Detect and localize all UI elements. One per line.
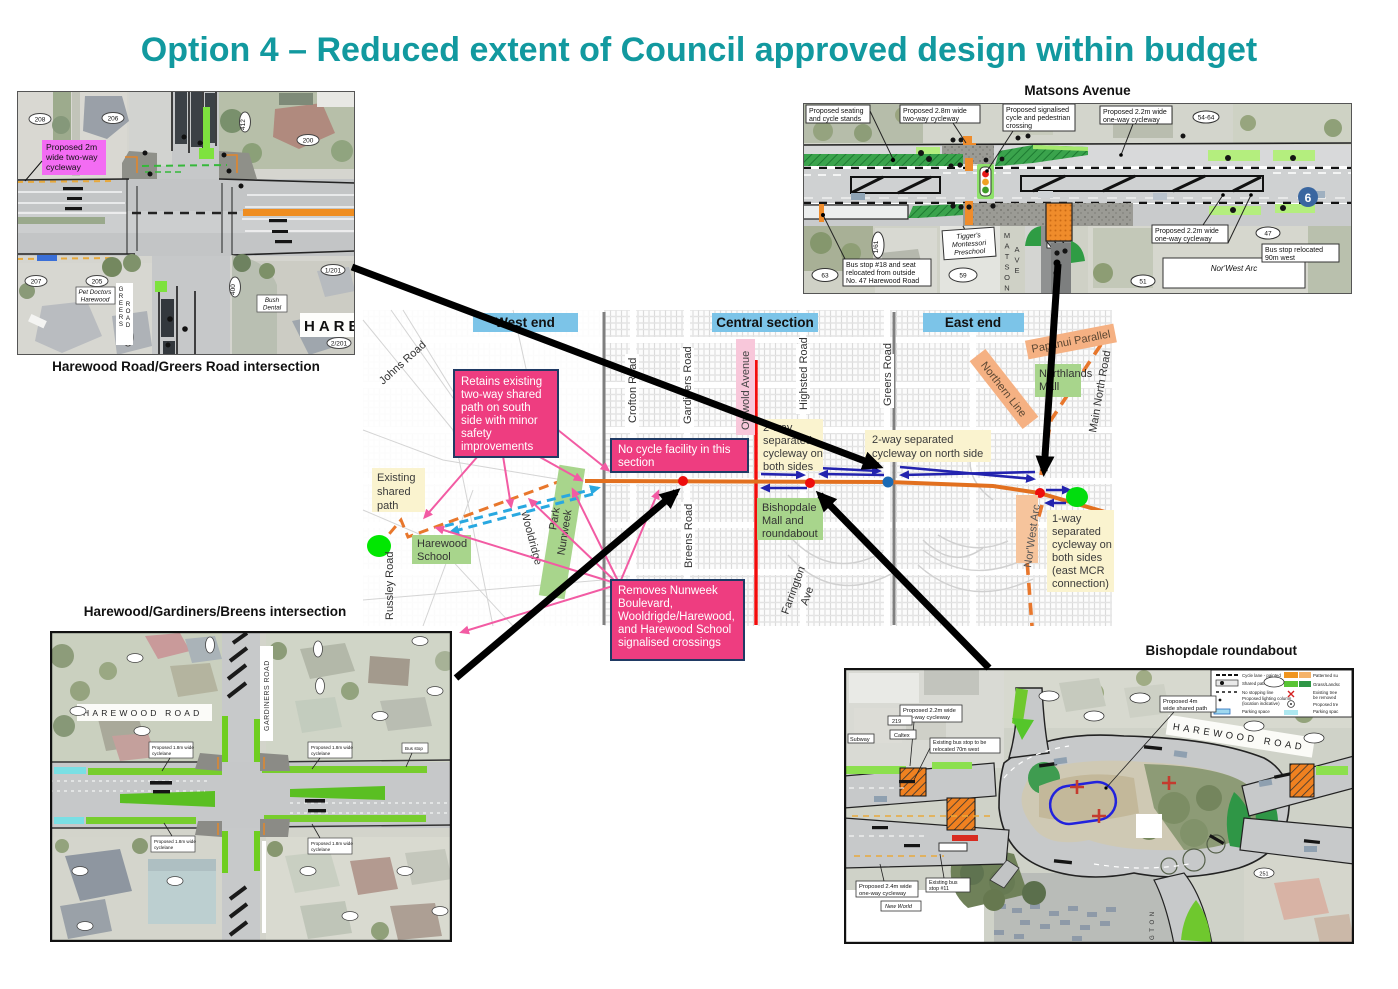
svg-text:412: 412 xyxy=(240,119,247,130)
svg-text:cycle and pedestrian: cycle and pedestrian xyxy=(1006,115,1070,122)
svg-text:63: 63 xyxy=(821,273,829,280)
svg-text:207: 207 xyxy=(31,279,42,286)
svg-text:safety: safety xyxy=(461,428,492,440)
svg-text:Breens Road: Breens Road xyxy=(683,504,695,568)
svg-text:Bus stop: Bus stop xyxy=(405,746,423,751)
svg-text:1/61: 1/61 xyxy=(873,240,880,253)
svg-text:Proposed 2.2m wide: Proposed 2.2m wide xyxy=(1103,109,1167,116)
svg-text:251: 251 xyxy=(1259,872,1268,878)
svg-text:2-way: 2-way xyxy=(763,422,793,434)
svg-text:Proposed 1.8m wide: Proposed 1.8m wide xyxy=(311,745,353,750)
svg-text:Mall: Mall xyxy=(1039,381,1059,393)
svg-text:cycleway: cycleway xyxy=(46,162,82,172)
svg-text:Proposed 1.8m wide: Proposed 1.8m wide xyxy=(154,839,196,844)
svg-text:Gardiners Road: Gardiners Road xyxy=(682,346,694,424)
svg-text:Retains existing: Retains existing xyxy=(461,376,542,388)
svg-text:cycleway on: cycleway on xyxy=(763,448,823,460)
svg-text:section: section xyxy=(618,457,654,469)
svg-text:one-way cycleway: one-way cycleway xyxy=(1155,236,1212,243)
svg-text:51: 51 xyxy=(1139,279,1147,286)
svg-text:crossing: crossing xyxy=(1006,123,1032,130)
svg-text:Parking space: Parking space xyxy=(1242,709,1270,714)
svg-text:relocated 70m west: relocated 70m west xyxy=(933,747,979,753)
svg-text:Proposed seating: Proposed seating xyxy=(809,108,864,115)
svg-text:relocated from outside: relocated from outside xyxy=(846,270,915,277)
svg-text:separated: separated xyxy=(763,435,812,447)
svg-text:Proposed 1.8m wide: Proposed 1.8m wide xyxy=(311,841,353,846)
svg-text:and cycle stands: and cycle stands xyxy=(809,116,862,123)
svg-text:Greers Road: Greers Road xyxy=(882,343,894,406)
svg-text:HAREWOOD ROAD: HAREWOOD ROAD xyxy=(83,708,203,718)
svg-text:No cycle facility in this: No cycle facility in this xyxy=(618,444,731,456)
svg-text:Crofton Road: Crofton Road xyxy=(627,358,639,423)
svg-text:1/201: 1/201 xyxy=(325,268,342,275)
svg-text:Bush: Bush xyxy=(265,297,280,304)
svg-text:New World: New World xyxy=(885,904,913,910)
svg-text:Northlands: Northlands xyxy=(1039,368,1093,380)
svg-text:Proposed 2.2m wide: Proposed 2.2m wide xyxy=(903,708,956,714)
svg-text:AVE: AVE xyxy=(1013,245,1022,277)
svg-text:Proposed 4m: Proposed 4m xyxy=(1163,699,1198,705)
svg-text:219: 219 xyxy=(892,719,901,725)
svg-text:Patterned su: Patterned su xyxy=(1313,673,1338,678)
svg-text:West end: West end xyxy=(495,315,555,330)
svg-text:Proposed 2.8m wide: Proposed 2.8m wide xyxy=(903,108,967,115)
svg-text:signalised crossings: signalised crossings xyxy=(618,637,721,649)
svg-text:Boulevard,: Boulevard, xyxy=(618,598,673,610)
svg-text:cyclelane: cyclelane xyxy=(152,751,172,756)
svg-text:cyclelane: cyclelane xyxy=(311,847,331,852)
svg-text:shared: shared xyxy=(377,486,411,498)
svg-text:two-way cycleway: two-way cycleway xyxy=(903,116,960,123)
svg-text:No stopping line: No stopping line xyxy=(1242,690,1274,695)
svg-text:Highsted Road: Highsted Road xyxy=(798,337,810,410)
svg-text:Bus stop relocated: Bus stop relocated xyxy=(1265,247,1323,254)
svg-text:School: School xyxy=(417,551,451,563)
svg-text:Harewood: Harewood xyxy=(81,297,110,304)
svg-text:East end: East end xyxy=(945,315,1001,330)
svg-text:(location indicative): (location indicative) xyxy=(1242,701,1280,706)
svg-text:stop #11: stop #11 xyxy=(929,886,949,892)
svg-text:wide two-way: wide two-way xyxy=(45,152,98,162)
svg-text:Proposed 1.8m wide: Proposed 1.8m wide xyxy=(152,745,194,750)
svg-text:MATSONS: MATSONS xyxy=(1003,231,1012,294)
svg-text:GREERS: GREERS xyxy=(118,286,125,328)
svg-text:Mall and: Mall and xyxy=(762,515,804,527)
svg-text:Pet Doctors: Pet Doctors xyxy=(79,289,113,296)
svg-text:GARDINERS ROAD: GARDINERS ROAD xyxy=(264,660,271,731)
svg-text:Harewood: Harewood xyxy=(417,538,467,550)
svg-text:G T O N: G T O N xyxy=(1150,911,1156,940)
svg-text:Proposed 2m: Proposed 2m xyxy=(46,142,97,152)
svg-text:separated: separated xyxy=(1052,526,1101,538)
svg-text:ROAD: ROAD xyxy=(125,301,132,329)
svg-text:Existing bus stop to be: Existing bus stop to be xyxy=(933,740,986,746)
svg-text:Bus stop #18 and seat: Bus stop #18 and seat xyxy=(846,262,916,269)
svg-text:both sides: both sides xyxy=(763,461,814,473)
svg-text:path: path xyxy=(377,500,398,512)
svg-text:cyclelane: cyclelane xyxy=(154,845,174,850)
svg-text:90m west: 90m west xyxy=(1265,255,1295,262)
svg-text:Grass/Landsc: Grass/Landsc xyxy=(1313,682,1341,687)
svg-text:Shared path: Shared path xyxy=(1242,681,1266,686)
svg-text:205: 205 xyxy=(92,279,103,286)
svg-text:Existing: Existing xyxy=(377,472,416,484)
svg-text:improvements: improvements xyxy=(461,441,533,453)
svg-text:(east MCR: (east MCR xyxy=(1052,565,1105,577)
svg-text:wide shared path: wide shared path xyxy=(1162,706,1207,712)
svg-text:Nor'West Arc: Nor'West Arc xyxy=(1211,264,1257,273)
svg-text:Proposed 2.4m wide: Proposed 2.4m wide xyxy=(859,884,912,890)
svg-text:Caltex: Caltex xyxy=(894,733,910,739)
svg-text:2/201: 2/201 xyxy=(331,341,348,348)
svg-text:47: 47 xyxy=(1264,231,1272,238)
svg-text:HARE: HARE xyxy=(304,318,355,335)
svg-text:59: 59 xyxy=(959,273,967,280)
svg-text:Parking spac: Parking spac xyxy=(1313,709,1339,714)
svg-text:206: 206 xyxy=(108,116,119,123)
svg-text:Proposed tre: Proposed tre xyxy=(1313,702,1339,707)
svg-text:Central section: Central section xyxy=(716,315,814,330)
svg-text:208: 208 xyxy=(35,117,46,124)
svg-text:path on south: path on south xyxy=(461,402,531,414)
svg-text:side with minor: side with minor xyxy=(461,415,538,427)
svg-text:Dental: Dental xyxy=(263,305,282,312)
svg-text:6: 6 xyxy=(1305,191,1312,205)
svg-text:Removes Nunweek: Removes Nunweek xyxy=(618,585,718,597)
svg-text:one-way cycleway: one-way cycleway xyxy=(1103,117,1160,124)
svg-text:cyclelane: cyclelane xyxy=(311,751,331,756)
svg-text:both sides: both sides xyxy=(1052,552,1103,564)
svg-text:No. 47 Harewood Road: No. 47 Harewood Road xyxy=(846,278,919,285)
svg-text:54-64: 54-64 xyxy=(1198,115,1215,122)
svg-text:2-way separated: 2-way separated xyxy=(872,434,953,446)
svg-text:cycleway on north side: cycleway on north side xyxy=(872,448,983,460)
svg-text:connection): connection) xyxy=(1052,578,1109,590)
svg-text:Proposed 2.2m wide: Proposed 2.2m wide xyxy=(1155,228,1219,235)
svg-text:Otswold Avenue: Otswold Avenue xyxy=(740,351,752,430)
svg-text:Subway: Subway xyxy=(850,737,870,743)
svg-text:Wooldrigde/Harewood,: Wooldrigde/Harewood, xyxy=(618,611,735,623)
svg-text:one-way cycleway: one-way cycleway xyxy=(859,891,906,897)
svg-text:Bishopdale: Bishopdale xyxy=(762,502,816,514)
svg-text:and Harewood School: and Harewood School xyxy=(618,624,731,636)
svg-text:be removed: be removed xyxy=(1313,695,1337,700)
svg-text:Proposed signalised: Proposed signalised xyxy=(1006,107,1069,114)
svg-text:400: 400 xyxy=(230,284,237,295)
svg-text:200: 200 xyxy=(303,138,314,145)
svg-text:roundabout: roundabout xyxy=(762,528,818,540)
svg-text:two-way shared: two-way shared xyxy=(461,389,542,401)
svg-text:1-way: 1-way xyxy=(1052,513,1082,525)
svg-text:cycleway on: cycleway on xyxy=(1052,539,1112,551)
